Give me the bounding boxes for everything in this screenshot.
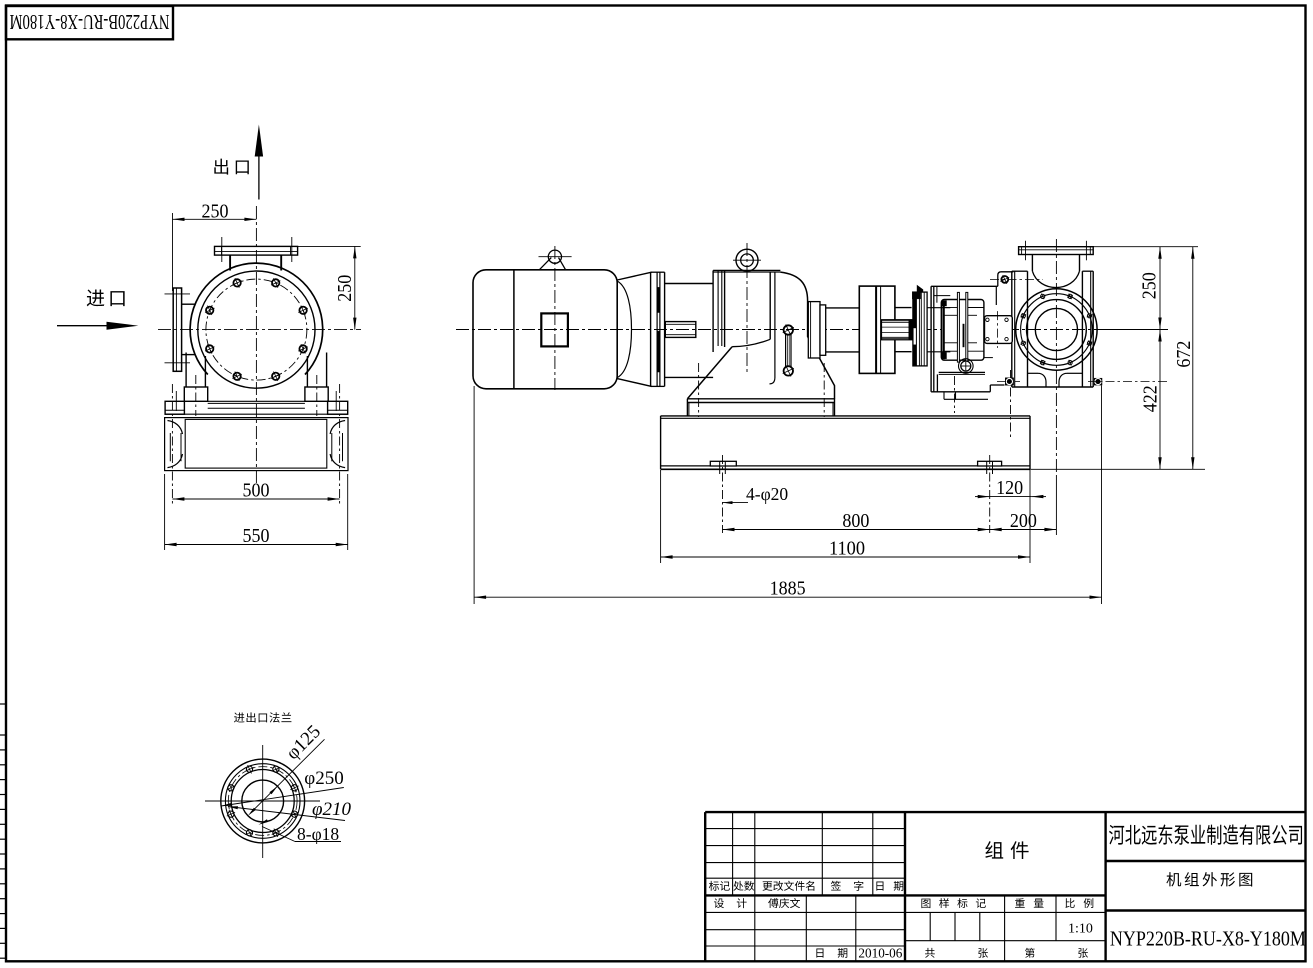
svg-text:200: 200	[1010, 510, 1037, 532]
svg-text:1:10: 1:10	[1068, 922, 1093, 937]
svg-text:φ210: φ210	[312, 799, 352, 820]
svg-text:120: 120	[996, 477, 1023, 499]
svg-text:8-φ18: 8-φ18	[297, 824, 339, 844]
svg-text:φ250: φ250	[304, 768, 343, 789]
svg-text:250: 250	[1139, 272, 1161, 299]
svg-text:4-φ20: 4-φ20	[746, 484, 788, 504]
svg-text:NYP220B-RU-X8-Y180M: NYP220B-RU-X8-Y180M	[1110, 927, 1306, 951]
svg-text:NYP220B-RU-X8-Y180M: NYP220B-RU-X8-Y180M	[9, 10, 169, 34]
svg-text:550: 550	[243, 525, 270, 547]
svg-text:500: 500	[243, 480, 270, 502]
svg-text:672: 672	[1173, 341, 1195, 368]
svg-text:422: 422	[1140, 385, 1162, 412]
svg-text:2010-06: 2010-06	[858, 946, 902, 961]
svg-text:1100: 1100	[829, 538, 865, 560]
svg-text:250: 250	[202, 200, 229, 222]
svg-text:250: 250	[334, 275, 356, 302]
svg-text:800: 800	[842, 510, 869, 532]
svg-text:1885: 1885	[770, 578, 806, 600]
